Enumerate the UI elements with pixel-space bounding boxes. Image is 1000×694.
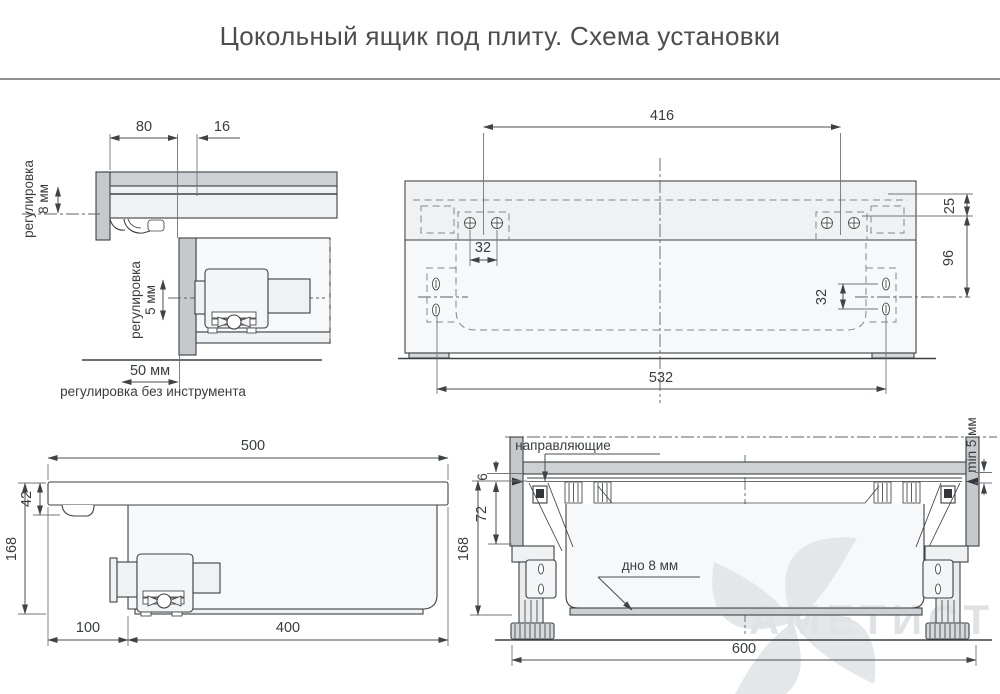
drawing-top-view: 416 32 32 25 96 532 <box>398 108 973 403</box>
front-panel-edge <box>96 172 110 240</box>
dim-32-horizontal: 32 <box>475 240 491 256</box>
note-toolless-adjustment: регулировка без инструмента <box>60 384 246 399</box>
page-header: Цокольный ящик под плиту. Схема установк… <box>0 0 1000 80</box>
dim-532: 532 <box>649 370 673 386</box>
dim-400: 400 <box>276 620 300 636</box>
cabinet-side-left <box>510 437 523 546</box>
label-adjust-8mm: регулировка <box>21 160 36 238</box>
label-rails: направляющие <box>515 438 611 453</box>
dim-6: 6 <box>475 473 490 481</box>
dim-100: 100 <box>76 620 100 636</box>
drawing-side-adjustment-detail: 80 16 регулировка 8 мм регулировка 5 мм … <box>21 119 337 399</box>
dim-600: 600 <box>732 641 756 657</box>
dim-416: 416 <box>650 108 674 124</box>
dim-72: 72 <box>474 506 490 522</box>
dim-96: 96 <box>941 250 957 266</box>
page: Цокольный ящик под плиту. Схема установк… <box>0 0 1000 694</box>
drawing-side-view: 500 42 168 100 400 <box>4 438 448 646</box>
dim-500: 500 <box>241 438 265 454</box>
dim-168: 168 <box>4 537 20 561</box>
vent-grilles <box>565 482 920 503</box>
worktop-section <box>523 462 966 474</box>
label-adjust-8mm-value: 8 мм <box>36 184 51 214</box>
watermark-text: АМЕТИСТ <box>749 596 995 643</box>
label-adjust-5mm: регулировка <box>128 261 143 339</box>
label-min-gap: min 5 мм <box>964 417 979 472</box>
front-lip <box>62 505 94 516</box>
dim-32-vertical: 32 <box>814 289 830 305</box>
dim-168: 168 <box>456 537 472 561</box>
dim-42: 42 <box>19 491 35 507</box>
dim-25: 25 <box>942 198 958 214</box>
dim-80: 80 <box>136 119 152 135</box>
installation-diagram: 80 16 регулировка 8 мм регулировка 5 мм … <box>0 0 1000 694</box>
dim-50mm: 50 мм <box>130 363 170 379</box>
worktop <box>48 482 448 505</box>
label-bottom-8mm: дно 8 мм <box>622 558 678 573</box>
page-title: Цокольный ящик под плиту. Схема установк… <box>0 0 1000 52</box>
drawer-front-panel <box>179 238 196 355</box>
leg-left <box>511 546 556 639</box>
dim-16: 16 <box>214 119 230 135</box>
label-adjust-5mm-value: 5 мм <box>143 285 158 315</box>
